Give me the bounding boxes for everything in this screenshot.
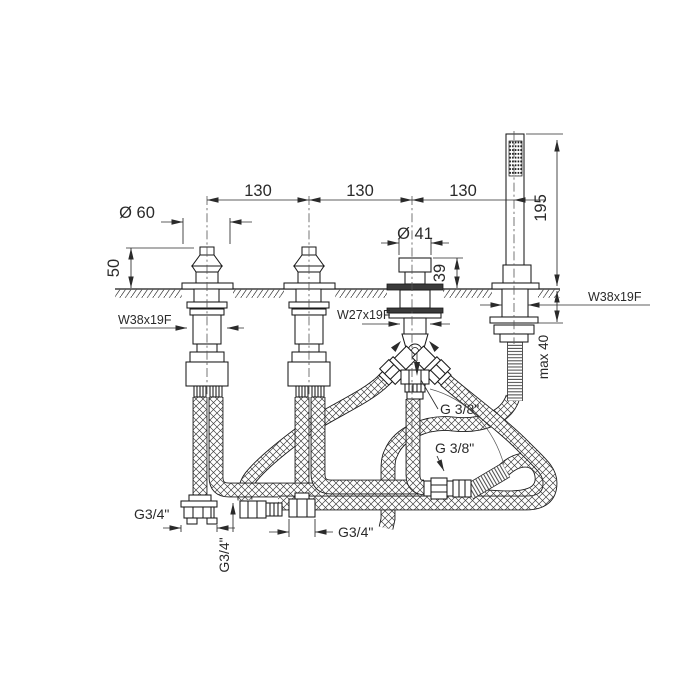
conn-g34-middle-label: G3/4" [338,524,373,540]
thread-valve-label: W38x19F [118,313,172,327]
dim-height-195: 195 [532,194,550,222]
dim-max-40: max 40 [536,335,551,379]
dim-130-b: 130 [346,182,374,200]
dim-130-a: 130 [244,182,272,200]
background [0,0,700,700]
conn-g34-vertical-label: G3/4" [216,537,232,572]
spout-flange [387,284,443,290]
shower-flange [492,283,539,289]
dim-height-50: 50 [105,259,123,277]
dim-130-c: 130 [449,182,477,200]
conn-g34-left-label: G3/4" [134,506,169,522]
thread-shower-label: W38x19F [588,290,642,304]
spray-face [509,141,522,176]
tee-bottom-nut [401,370,429,384]
deck-hatch [115,290,182,298]
dim-dia-41: Ø 41 [397,225,433,243]
thread-spout-label: W27x19F [337,308,391,322]
dim-dia-60: Ø 60 [119,204,155,222]
fitting-g34-vertical [240,501,282,518]
fitting-g38-connector [424,478,471,499]
dim-height-39: 39 [431,264,449,282]
shower-holder [503,265,531,283]
spout-cylinder [399,258,431,272]
conn-g38-top-label: G 3/8" [440,401,479,417]
technical-drawing: 130 130 130 Ø 60 50 Ø 41 39 195 max 40 W… [0,0,700,700]
conn-g38-bottom-label: G 3/8" [435,440,474,456]
